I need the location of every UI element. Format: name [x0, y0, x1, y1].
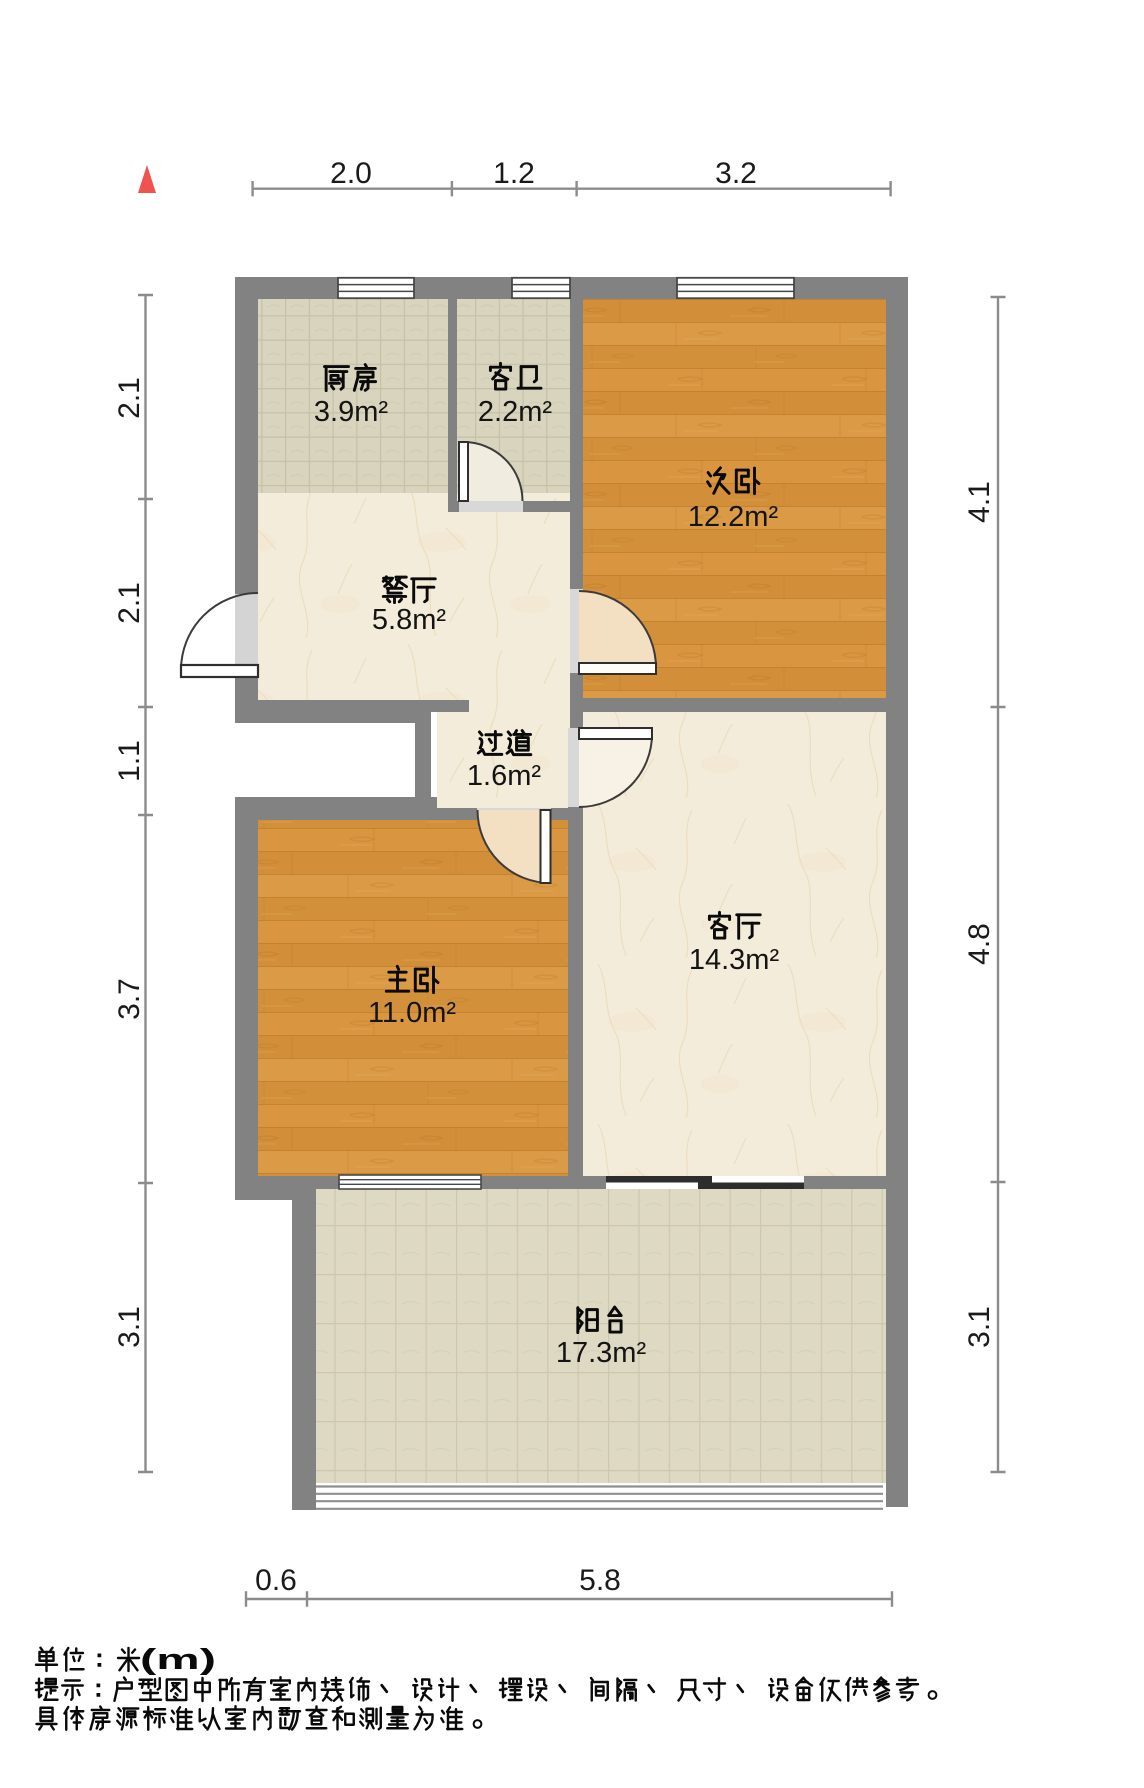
svg-text:5.8: 5.8: [579, 1564, 621, 1597]
svg-text:2.0: 2.0: [330, 157, 372, 190]
svg-text:4.8: 4.8: [963, 923, 996, 965]
svg-text:2.1: 2.1: [113, 377, 146, 419]
svg-text:2.2m²: 2.2m²: [478, 396, 552, 428]
svg-text:1.2: 1.2: [493, 157, 535, 190]
svg-text:3.1: 3.1: [113, 1306, 146, 1348]
svg-text:3.1: 3.1: [963, 1306, 996, 1348]
svg-text:17.3m²: 17.3m²: [556, 1337, 647, 1369]
svg-text:3.7: 3.7: [113, 978, 146, 1020]
svg-text:3.9m²: 3.9m²: [314, 396, 388, 428]
svg-text:2.1: 2.1: [113, 582, 146, 624]
svg-text:14.3m²: 14.3m²: [689, 944, 780, 976]
svg-text:1.6m²: 1.6m²: [467, 760, 541, 792]
svg-text:4.1: 4.1: [963, 481, 996, 523]
svg-text:1.1: 1.1: [113, 740, 146, 782]
svg-text:5.8m²: 5.8m²: [372, 604, 446, 636]
svg-text:11.0m²: 11.0m²: [368, 997, 456, 1029]
svg-text:0.6: 0.6: [255, 1564, 297, 1597]
svg-text:12.2m²: 12.2m²: [688, 501, 779, 533]
svg-text:3.2: 3.2: [715, 157, 757, 190]
svg-text:(m): (m): [140, 1644, 216, 1676]
